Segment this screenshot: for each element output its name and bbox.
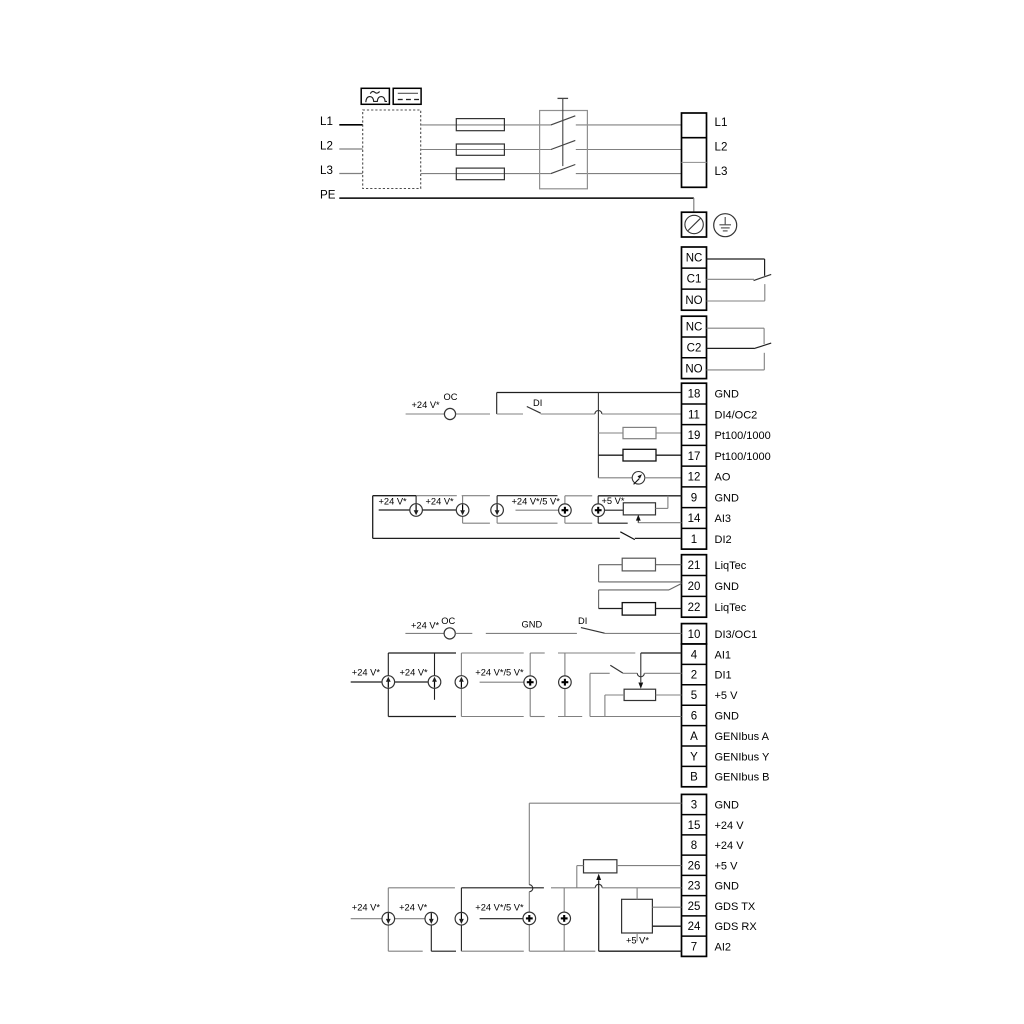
- svg-text:NO: NO: [685, 363, 702, 375]
- svg-text:+24 V: +24 V: [715, 820, 745, 832]
- svg-text:+24 V*: +24 V*: [426, 496, 455, 506]
- svg-text:GND: GND: [715, 881, 740, 893]
- svg-text:11: 11: [688, 409, 700, 421]
- svg-text:GDS TX: GDS TX: [715, 901, 756, 913]
- svg-text:15: 15: [688, 820, 701, 832]
- svg-text:AI2: AI2: [715, 941, 732, 953]
- svg-text:AI1: AI1: [715, 649, 732, 661]
- svg-text:14: 14: [688, 513, 701, 525]
- svg-text:DI3/OC1: DI3/OC1: [715, 629, 758, 641]
- svg-text:C1: C1: [687, 274, 702, 286]
- svg-text:GND: GND: [522, 620, 543, 630]
- svg-text:L3: L3: [715, 165, 728, 178]
- svg-text:+24 V*/5 V*: +24 V*/5 V*: [475, 902, 524, 912]
- svg-text:L1: L1: [320, 115, 333, 128]
- svg-text:LiqTec: LiqTec: [715, 560, 747, 572]
- svg-text:C2: C2: [687, 343, 702, 355]
- svg-text:Pt100/1000: Pt100/1000: [715, 430, 771, 442]
- svg-text:20: 20: [688, 581, 701, 593]
- svg-text:GDS RX: GDS RX: [715, 921, 758, 933]
- svg-text:+24 V*: +24 V*: [352, 667, 381, 677]
- svg-text:21: 21: [688, 560, 701, 572]
- svg-text:7: 7: [691, 941, 697, 953]
- svg-text:NO: NO: [685, 295, 702, 307]
- svg-text:LiqTec: LiqTec: [715, 602, 747, 614]
- svg-text:+24 V*: +24 V*: [379, 496, 408, 506]
- svg-text:+5 V: +5 V: [715, 690, 739, 702]
- svg-text:L2: L2: [320, 139, 333, 152]
- svg-text:DI2: DI2: [715, 534, 732, 546]
- svg-text:10: 10: [688, 629, 701, 641]
- svg-text:+24 V*: +24 V*: [411, 621, 440, 631]
- svg-text:AI3: AI3: [715, 513, 732, 525]
- svg-text:17: 17: [688, 451, 701, 463]
- svg-text:+5 V*: +5 V*: [626, 936, 649, 946]
- svg-text:PE: PE: [320, 189, 336, 202]
- svg-text:DI: DI: [578, 616, 587, 626]
- svg-text:25: 25: [688, 901, 701, 913]
- svg-text:+5 V: +5 V: [715, 860, 739, 872]
- svg-text:L1: L1: [715, 116, 728, 129]
- svg-text:23: 23: [688, 881, 701, 893]
- svg-text:GENIbus B: GENIbus B: [715, 772, 770, 784]
- svg-text:+24 V*/5 V*: +24 V*/5 V*: [475, 667, 524, 677]
- svg-text:GND: GND: [715, 800, 740, 812]
- svg-text:9: 9: [691, 492, 697, 504]
- svg-text:DI1: DI1: [715, 670, 732, 682]
- svg-text:L3: L3: [320, 164, 333, 177]
- svg-text:+24 V*: +24 V*: [352, 902, 381, 912]
- svg-text:3: 3: [691, 800, 697, 812]
- svg-text:OC: OC: [444, 392, 458, 402]
- svg-text:GND: GND: [715, 581, 740, 593]
- svg-text:8: 8: [691, 840, 697, 852]
- svg-text:L2: L2: [715, 141, 728, 154]
- svg-text:Y: Y: [690, 751, 698, 763]
- svg-text:24: 24: [688, 921, 701, 933]
- svg-text:5: 5: [691, 690, 697, 702]
- svg-text:DI: DI: [533, 398, 542, 408]
- svg-text:19: 19: [688, 430, 701, 442]
- svg-text:22: 22: [688, 602, 701, 614]
- svg-text:B: B: [690, 772, 698, 784]
- svg-text:GENIbus Y: GENIbus Y: [715, 751, 770, 763]
- svg-text:+24 V*/5 V*: +24 V*/5 V*: [512, 496, 561, 506]
- svg-text:18: 18: [688, 389, 701, 401]
- svg-text:DI4/OC2: DI4/OC2: [715, 409, 758, 421]
- svg-text:Pt100/1000: Pt100/1000: [715, 451, 771, 463]
- svg-text:12: 12: [688, 472, 701, 484]
- svg-text:+24 V*: +24 V*: [399, 902, 428, 912]
- svg-text:1: 1: [691, 534, 697, 546]
- svg-text:+24 V: +24 V: [715, 840, 745, 852]
- svg-text:OC: OC: [441, 616, 455, 626]
- svg-text:26: 26: [688, 860, 701, 872]
- svg-text:4: 4: [691, 649, 698, 661]
- svg-text:A: A: [690, 731, 698, 743]
- svg-text:GND: GND: [715, 389, 740, 401]
- svg-text:GND: GND: [715, 492, 740, 504]
- svg-text:+24 V*: +24 V*: [400, 667, 429, 677]
- svg-text:2: 2: [691, 670, 697, 682]
- svg-text:NC: NC: [686, 322, 703, 334]
- svg-text:GENIbus A: GENIbus A: [715, 731, 770, 743]
- svg-text:NC: NC: [686, 253, 703, 265]
- svg-text:+24 V*: +24 V*: [412, 400, 441, 410]
- svg-text:GND: GND: [715, 711, 740, 723]
- svg-text:AO: AO: [715, 472, 731, 484]
- svg-text:+5 V*: +5 V*: [602, 496, 625, 506]
- svg-text:6: 6: [691, 711, 697, 723]
